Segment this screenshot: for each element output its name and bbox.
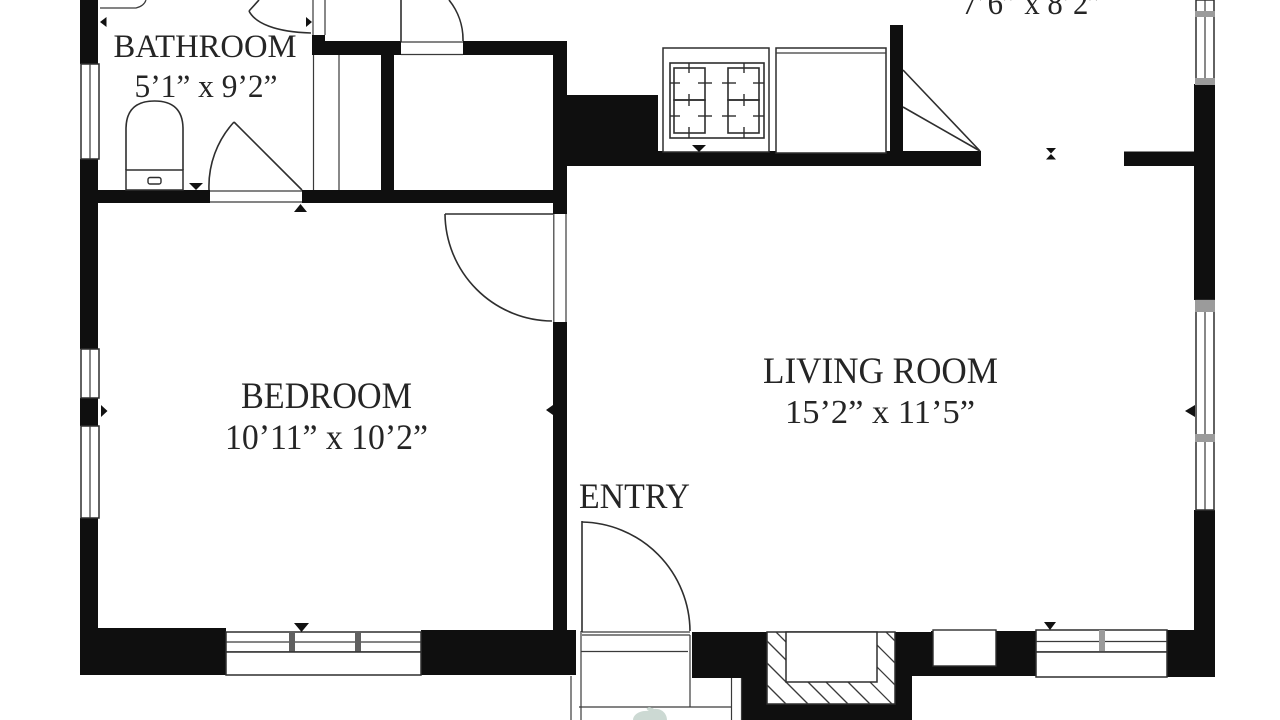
svg-text:LIVING ROOM: LIVING ROOM — [763, 351, 998, 392]
svg-text:ENTRY: ENTRY — [579, 476, 690, 516]
svg-text:15’2” x 11’5”: 15’2” x 11’5” — [785, 394, 975, 431]
svg-text:7’6” x 8’2”: 7’6” x 8’2” — [962, 0, 1102, 22]
svg-text:BATHROOM: BATHROOM — [114, 29, 297, 65]
svg-text:10’11” x 10’2”: 10’11” x 10’2” — [225, 417, 428, 457]
svg-text:5’1” x 9’2”: 5’1” x 9’2” — [135, 69, 278, 105]
svg-text:BEDROOM: BEDROOM — [241, 376, 412, 417]
